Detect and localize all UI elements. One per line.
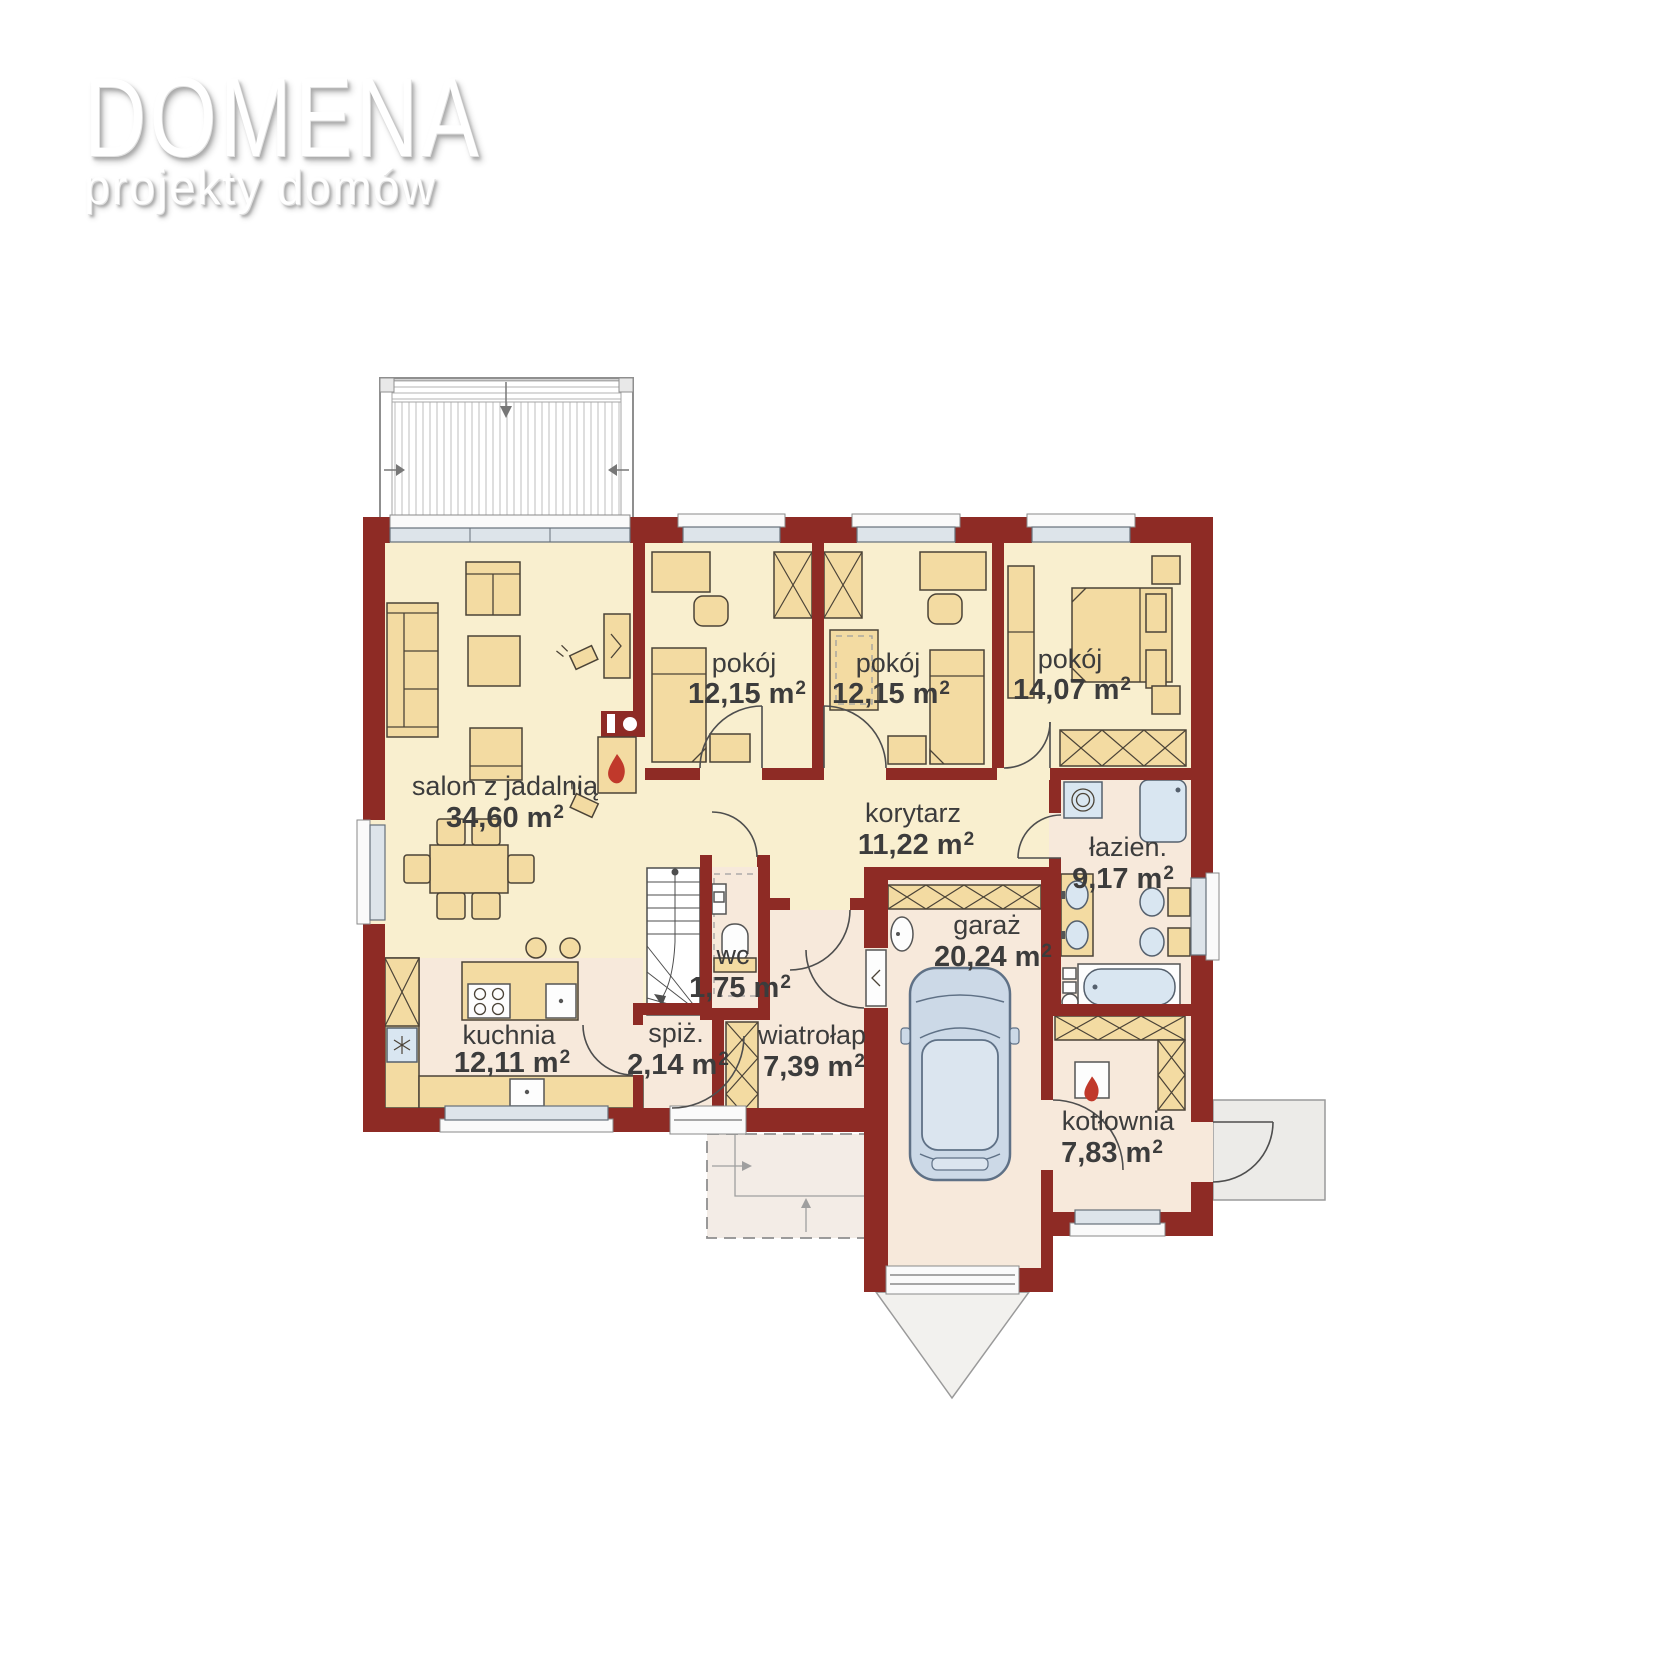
terrace-door [390, 515, 630, 542]
desk-chair [694, 596, 728, 626]
room-label-boiler: kotłownia [1062, 1106, 1176, 1136]
window [1191, 873, 1219, 960]
desk-chair [928, 594, 962, 624]
room-area-bedroom3: 14,07m2 [1013, 674, 1131, 706]
room-label-bathroom: łazien. [1089, 832, 1167, 862]
washing-machine [1064, 782, 1102, 818]
room-label-kitchen: kuchnia [462, 1020, 556, 1050]
island-sink [546, 984, 576, 1018]
front-door-threshold [670, 1106, 746, 1134]
floor-plan: salon z jadalnią 34,60m2 pokój 12,15m2 p… [0, 0, 1680, 1680]
room-label-corridor: korytarz [865, 798, 961, 828]
side-porch [1213, 1100, 1325, 1200]
room-area-boiler: 7,83m2 [1061, 1137, 1163, 1169]
car-mirror [1010, 1028, 1019, 1044]
dining-chair [437, 893, 465, 919]
garage-step [866, 950, 886, 1006]
car [901, 968, 1019, 1180]
room-area-bedroom2: 12,15m2 [832, 678, 950, 710]
fridge [385, 958, 419, 1026]
room-area-kitchen: 12,11m2 [454, 1047, 570, 1079]
room-area-corridor: 11,22m2 [858, 829, 974, 861]
coffee-table [468, 636, 520, 686]
pillow [1146, 650, 1166, 688]
room-label-wc: wc [716, 940, 750, 970]
boiler-shelf [1055, 1016, 1185, 1040]
garage-roof-gable [876, 1292, 1029, 1398]
room-label-garage: garaż [953, 910, 1021, 940]
bar-stool [560, 938, 580, 958]
dining-chair [404, 855, 430, 883]
wardrobe [1060, 730, 1186, 766]
dining-chair [472, 893, 500, 919]
window [1070, 1210, 1165, 1236]
boiler-shelf-side [1158, 1040, 1185, 1110]
room-area-pantry: 2,14m2 [627, 1049, 729, 1081]
freezer [387, 1028, 417, 1062]
kitchen-island [462, 962, 578, 1020]
window [678, 514, 785, 542]
window [440, 1106, 613, 1132]
loveseat [466, 562, 520, 615]
room-label-salon: salon z jadalnią [412, 771, 599, 801]
room-area-garage: 20,24m2 [934, 941, 1052, 973]
desk [920, 552, 986, 590]
bathtub [1062, 964, 1180, 1010]
window [357, 820, 385, 924]
pillow [1146, 594, 1166, 632]
window [1027, 514, 1135, 542]
wc-washbasin [712, 884, 726, 914]
room-area-bedroom1: 12,15m2 [688, 678, 806, 710]
room-label-bedroom3: pokój [1038, 644, 1103, 674]
room-area-salon: 34,60m2 [446, 802, 564, 834]
window [852, 514, 960, 542]
garage-door [886, 1266, 1019, 1294]
room-area-vestibule: 7,39m2 [763, 1051, 865, 1083]
bar-stool [526, 938, 546, 958]
nightstand [888, 736, 926, 764]
wardrobe [824, 552, 862, 618]
garage-washbasin [891, 917, 913, 951]
room-label-bedroom1: pokój [712, 648, 777, 678]
boiler [1075, 1062, 1109, 1101]
entry-porch [707, 1134, 888, 1238]
kitchen-sink [510, 1079, 544, 1106]
room-area-bathroom: 9,17m2 [1072, 863, 1174, 895]
wardrobe [774, 552, 812, 618]
room-label-bedroom2: pokój [856, 648, 921, 678]
nightstand [1152, 686, 1180, 714]
dining-chair [508, 855, 534, 883]
desk [652, 552, 710, 592]
nightstand [710, 734, 750, 762]
room-area-wc: 1,75m2 [689, 972, 791, 1004]
room-label-pantry: spiż. [648, 1018, 704, 1048]
sofa [387, 603, 438, 737]
nightstand [1152, 556, 1180, 584]
car-mirror [901, 1028, 910, 1044]
page: DOMENA projekty domów [0, 0, 1680, 1680]
room-label-vestibule: wiatrołap [757, 1020, 866, 1050]
terrace [380, 378, 633, 538]
tv-panel [604, 614, 630, 678]
stove [468, 984, 510, 1018]
garage-shelf [888, 885, 1041, 909]
